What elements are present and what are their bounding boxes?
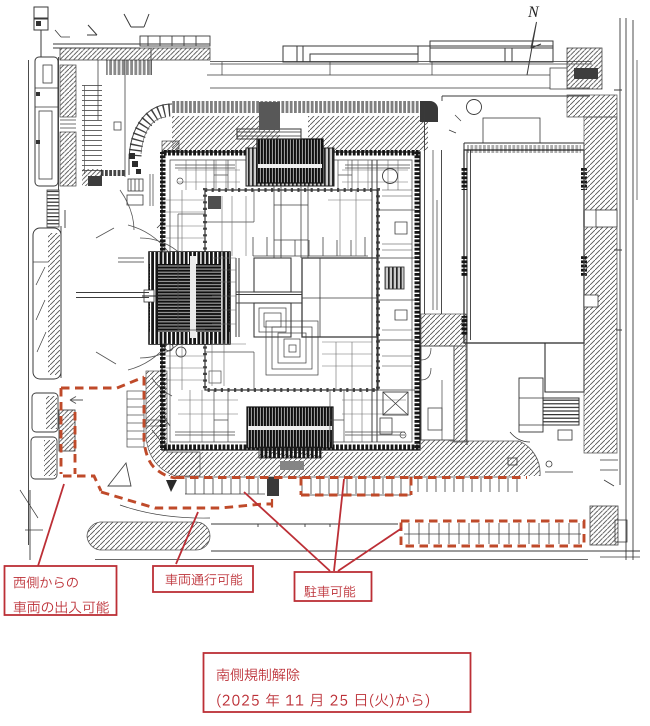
svg-text:N: N <box>527 4 540 21</box>
